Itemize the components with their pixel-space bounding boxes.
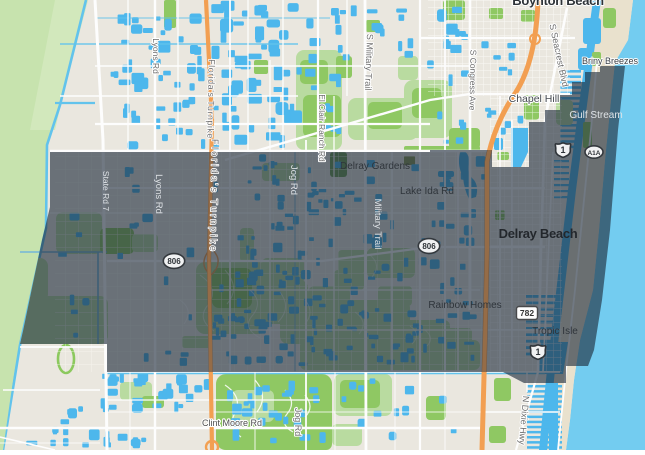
svg-text:S Military Trail: S Military Trail bbox=[363, 34, 375, 91]
svg-text:Florida's Turnpike: Florida's Turnpike bbox=[207, 139, 220, 253]
svg-text:Boynton Beach: Boynton Beach bbox=[512, 0, 604, 8]
svg-text:Lyons Rd: Lyons Rd bbox=[153, 174, 164, 214]
svg-text:Jog Rd: Jog Rd bbox=[293, 408, 303, 437]
svg-text:806: 806 bbox=[422, 242, 436, 251]
svg-text:Clint Moore Rd: Clint Moore Rd bbox=[202, 418, 262, 428]
svg-text:Delray Beach: Delray Beach bbox=[499, 226, 578, 241]
svg-text:Rainbow Homes: Rainbow Homes bbox=[428, 300, 501, 311]
svg-text:S Congress Ave: S Congress Ave bbox=[467, 50, 478, 111]
svg-text:Florida's Turnpike: Florida's Turnpike bbox=[205, 59, 216, 139]
svg-text:Chapel Hill: Chapel Hill bbox=[509, 93, 560, 105]
svg-text:782: 782 bbox=[520, 308, 534, 318]
svg-text:A1A: A1A bbox=[587, 150, 600, 157]
svg-text:Jog Rd: Jog Rd bbox=[288, 165, 299, 195]
svg-text:Military Trail: Military Trail bbox=[372, 199, 383, 250]
svg-text:El Clair Ranch Rd: El Clair Ranch Rd bbox=[317, 94, 327, 162]
svg-text:Delray Gardens: Delray Gardens bbox=[340, 161, 410, 172]
svg-text:1: 1 bbox=[535, 347, 540, 357]
svg-text:Gulf Stream: Gulf Stream bbox=[569, 110, 622, 121]
svg-text:Lake Ida Rd: Lake Ida Rd bbox=[400, 186, 454, 197]
svg-text:Tropic Isle: Tropic Isle bbox=[532, 326, 578, 337]
svg-text:State Rd 7: State Rd 7 bbox=[101, 171, 111, 211]
svg-text:Briny Breezes: Briny Breezes bbox=[582, 56, 639, 66]
svg-text:806: 806 bbox=[167, 257, 181, 266]
svg-text:1: 1 bbox=[560, 145, 565, 155]
svg-text:Lyons Rd: Lyons Rd bbox=[151, 38, 161, 74]
